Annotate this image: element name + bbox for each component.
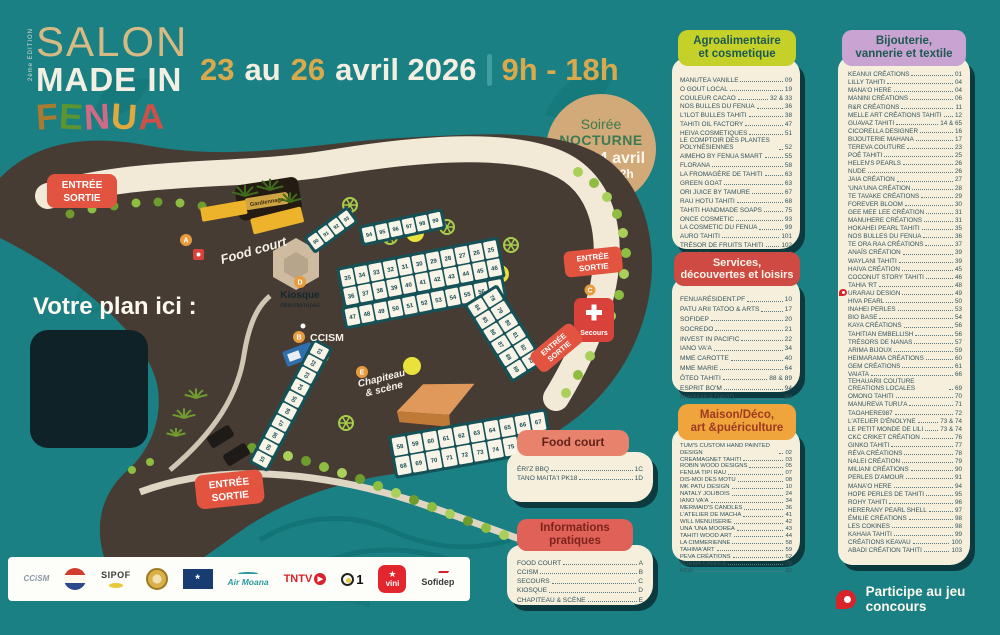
exhibitor-row: MERMAID'S CANDLES36 [680, 505, 792, 512]
exhibitor-name: MK PATU DESIGN [680, 484, 730, 491]
section-header-maison: Maison/Déco, art &puériculture [678, 404, 796, 440]
exhibitor-row: SECOURSC [517, 576, 643, 585]
exhibitor-row: NALEI CRÉATION79 [848, 457, 962, 465]
stand-number: 88 & 89 [769, 375, 792, 382]
stand-number: 75 [785, 207, 792, 214]
stand-number: 100 [951, 539, 962, 546]
food-court-body: ÉRI'Z BBQ1CTANO MAITA'I PK181D [507, 452, 653, 502]
leader-dots [926, 213, 953, 214]
leader-dots [916, 140, 953, 141]
stand-number: 22 [785, 336, 792, 343]
exhibitor-row: IANO VA'A34 [680, 343, 792, 353]
exhibitor-row: ANAÏS CRÉATION39 [848, 248, 962, 256]
stand-number: 12 [955, 112, 962, 119]
bush [585, 351, 595, 361]
stand-number: 53 [955, 306, 962, 313]
exhibitor-name: GEM CRÉATIONS [848, 363, 900, 370]
leader-dots [894, 91, 953, 92]
exhibitor-name: NOS BULLES DU FENUA [848, 233, 921, 240]
stand-number: 78 [955, 450, 962, 457]
edition-label: 2ème ÉDITION [28, 28, 34, 81]
leader-dots [764, 211, 783, 212]
section-header-services: Services, découvertes et loisirs [674, 252, 800, 286]
marker-b: B [296, 335, 301, 342]
exhibitor-name: GEE MEE LEE CRÉATION [848, 209, 924, 216]
leader-dots [871, 375, 953, 376]
stand-number: 20 [785, 316, 792, 323]
stand-number: 70 [955, 393, 962, 400]
bush [409, 495, 419, 505]
exhibitor-row: TRÉSOR DE FRUITS TAHITI102 [680, 240, 792, 249]
leader-dots [879, 318, 953, 319]
date-au: au [244, 52, 280, 88]
leader-dots [723, 379, 767, 380]
leader-dots [904, 327, 953, 328]
exhibitor-name: HOKAHEI PEARL TAHITI [848, 225, 920, 232]
stand-number: 69 [955, 385, 962, 392]
leader-dots [926, 359, 953, 360]
bank-logo: * [183, 569, 213, 589]
stand-number: 25 [955, 152, 962, 159]
leader-dots [903, 164, 953, 165]
exhibitor-row: PERLES D'AMOUR91 [848, 473, 962, 481]
exhibitor-row: HEIMARAMA CRÉATIONS60 [848, 354, 962, 362]
stand-number: 42 [785, 519, 792, 526]
exhibitor-name: POÉ TAHITI [848, 152, 882, 159]
exhibitor-row: ABADI CRÉATION TAHITI103 [848, 546, 962, 554]
bush [355, 474, 365, 484]
la-premiere-logo: 1 [341, 573, 363, 586]
bush [146, 458, 154, 466]
bush [445, 509, 455, 519]
papeete-emblem [146, 568, 168, 590]
stand-number: A [639, 560, 643, 567]
exhibitor-name: GUAVAZ TAHITI [848, 120, 894, 127]
contest-pin-icon [836, 590, 856, 609]
bush [561, 388, 571, 398]
exhibitor-row: MOII92 [680, 567, 792, 574]
secours-label: Secours [580, 330, 608, 337]
exhibitor-row: MME MARIE64 [680, 363, 792, 373]
stand-number: 76 [955, 434, 962, 441]
leader-dots [887, 83, 953, 84]
exhibitor-name: PEVA CRÉATIONS [680, 554, 731, 561]
leader-dots [909, 405, 953, 406]
exhibitor-row: KAYA CRÉATIONS56 [848, 321, 962, 329]
exhibitor-row: ONCE COSMETIC93 [680, 214, 792, 223]
entrance-badge-nw: ENTRÉE SORTIE [47, 174, 117, 208]
exhibitor-name: MERMAID'S CANDLES [680, 505, 742, 512]
stand-number: 57 [955, 339, 962, 346]
exhibitor-name: AIMEHO BY FENUA SMART [680, 153, 763, 160]
stand-number: C [638, 578, 643, 585]
leader-dots [911, 470, 953, 471]
exhibitor-name: MOII [680, 568, 693, 575]
exhibitor-name: CCISM [517, 569, 538, 576]
infos-header: Informations pratiques [517, 519, 633, 551]
stand-number: 95 [955, 491, 962, 498]
booth-number: 95 [379, 229, 386, 236]
exhibitor-name: LA COSMETIC DU FENUA [680, 224, 757, 231]
leader-dots [886, 302, 953, 303]
leader-dots [712, 166, 783, 167]
leader-dots [732, 488, 784, 489]
leader-dots [779, 453, 783, 454]
booth-number: 97 [406, 223, 413, 230]
exhibitor-name: WAYLANI TAHITI [848, 258, 897, 265]
section-body-maison: TUM'S CUSTOM HAND PAINTED DESIGN02CREAMA… [672, 428, 800, 561]
exhibitor-name: MANA'O HERE [848, 87, 892, 94]
stand-number: 99 [785, 224, 792, 231]
exhibitor-row: RÉVA CRÉATIONS78 [848, 449, 962, 457]
stand-number: 94 [785, 385, 792, 392]
leader-dots [894, 535, 953, 536]
stand-number: 39 [955, 258, 962, 265]
leader-dots [728, 564, 783, 565]
bush [66, 210, 75, 219]
stand-number: 51 [785, 130, 792, 137]
stand-number: 36 [955, 233, 962, 240]
exhibitor-name: TAHIMA'ART [680, 547, 715, 554]
exhibitor-row: ORI JUICE BY TAMURE67 [680, 187, 792, 196]
bush [573, 370, 583, 380]
exhibitor-name: TAHITIAN EMBELLISH [848, 331, 913, 338]
stand-number: 27 [955, 176, 962, 183]
leader-dots [891, 446, 953, 447]
section-header-bijouterie: Bijouterie, vannerie et textile [842, 30, 966, 66]
exhibitor-name: CHAPITEAU & SCÈNE [517, 597, 586, 604]
exhibitor-name: TRÉSORS DE NANAS [848, 339, 912, 346]
poster: 2ème ÉDITION SALON MADE IN FENUA 23 au 2… [0, 0, 1000, 635]
leader-dots [889, 503, 953, 504]
exhibitor-name: BIJOUTERIE MAHANA [848, 136, 914, 143]
leader-dots [588, 601, 637, 602]
exhibitor-name: KEANUI CRÉATIONS [848, 71, 909, 78]
exhibitor-name: L'ATELIER DE MACHA [680, 512, 741, 519]
exhibitor-name: TRÉSOR DE FRUITS TAHITI [680, 242, 764, 249]
sipof-logo: SIPOF [101, 571, 131, 588]
exhibitor-name: LA FROMAGÈRE DE TAHITI [680, 171, 763, 178]
leader-dots [732, 543, 783, 544]
exhibitor-name: KAYA CRÉATIONS [848, 322, 902, 329]
exhibitor-row: MANA'O HERE04 [848, 86, 962, 94]
stand-number: 48 [955, 282, 962, 289]
contest-pin-icon [839, 289, 847, 296]
exhibitor-name: ANAÏS CRÉATION [848, 249, 901, 256]
leader-dots [894, 487, 953, 488]
leader-dots [747, 301, 782, 302]
stand-number: 01 [955, 71, 962, 78]
stand-number: 41 [785, 512, 792, 519]
exhibitor-row: NATALY JOLIBOIS24 [680, 491, 792, 498]
stand-number: 34 [785, 498, 792, 505]
marker-d: D [297, 280, 302, 287]
stand-number: 30 [955, 201, 962, 208]
leader-dots [905, 205, 953, 206]
exhibitor-row: R&R CRÉATIONS11 [848, 102, 962, 110]
stand-number: 32 & 33 [770, 95, 792, 102]
stand-number: 34 [785, 345, 792, 352]
exhibitor-name: ÉRI'Z BBQ [517, 466, 549, 473]
stand-number: 24 [785, 491, 792, 498]
exhibitor-name: TEREVA COUTURE [848, 144, 905, 151]
stand-number: 76 [785, 561, 792, 568]
exhibitor-name: TUM'S CUSTOM HAND PAINTED DESIGN [680, 443, 777, 456]
exhibitor-name: GINKO TAHITI [848, 442, 889, 449]
exhibitor-row: O GOUT LOCAL19 [680, 84, 792, 93]
exhibitor-row: CHAPITEAU & SCÈNEE [517, 595, 643, 604]
stand-number: 67 [785, 189, 792, 196]
exhibitor-name: HEIVA COSMETIQUES [680, 130, 747, 137]
leader-dots [895, 414, 953, 415]
exhibitor-row: 'UNA'UNA CRÉATION28 [848, 184, 962, 192]
exhibitor-name: UNA 'UNA MOOREA [680, 526, 735, 533]
stand-number: 72 [955, 410, 962, 417]
stand-number: 14 & 65 [940, 120, 962, 127]
leader-dots [765, 175, 783, 176]
exhibitor-row: AIMEHO BY FENUA SMART55 [680, 152, 792, 161]
leader-dots [749, 116, 783, 117]
stand-number: 26 [955, 168, 962, 175]
stand-number: 10 [785, 484, 792, 491]
leader-dots [911, 75, 953, 76]
stand-number: 54 [955, 314, 962, 321]
stand-number: 19 [785, 86, 792, 93]
section-header-agro: Agroalimentaire et cosmetique [678, 30, 796, 66]
exhibitor-name: RAU HOTU TAHITI [680, 198, 735, 205]
marker-a: A [183, 238, 188, 245]
section-body-agro: MANUTEA VANILLE09O GOUT LOCAL19COULEUR C… [672, 58, 800, 249]
stand-number: 93 [785, 216, 792, 223]
stand-number: 73 & 74 [940, 426, 962, 433]
exhibitor-name: MANINI CRÉATIONS [848, 95, 908, 102]
leader-dots [907, 148, 953, 149]
leader-dots [910, 99, 953, 100]
leader-dots [949, 389, 953, 390]
exhibitor-name: ROHY TAHITI [848, 499, 887, 506]
exhibitor-row: LE PETIT MONDE DE LILI73 & 74 [848, 425, 962, 433]
stand-number: 71 [955, 401, 962, 408]
stand-number: 10 [785, 296, 792, 303]
stand-number: 43 [785, 526, 792, 533]
bush [132, 199, 141, 208]
bush [301, 456, 311, 466]
leader-dots [884, 156, 953, 157]
leader-dots [925, 245, 953, 246]
exhibitor-name: CICORELLA DESIGNER [848, 128, 918, 135]
exhibitor-name: PATU ARII TATOO & ARTS [680, 306, 759, 313]
bush [463, 516, 473, 526]
stand-number: 61 [955, 363, 962, 370]
exhibitor-row: NOS BULLES DU FENUA36 [848, 232, 962, 240]
leader-dots [926, 278, 953, 279]
leader-dots [552, 583, 637, 584]
exhibitor-row: KEANUI CRÉATIONS01 [848, 70, 962, 78]
date-from: 23 [200, 52, 234, 88]
leader-dots [898, 310, 953, 311]
exhibitor-name: KIOSQUE [517, 587, 547, 594]
bush [391, 488, 401, 498]
leader-dots [903, 254, 953, 255]
stand-number: 97 [955, 507, 962, 514]
kiosque-label: Kiosque [280, 290, 320, 301]
stand-number: 07 [785, 470, 792, 477]
exhibitor-row: HELEN'S PEARLS26 [848, 159, 962, 167]
stand-number: 04 [955, 87, 962, 94]
exhibitor-row: HOPE PERLES DE TAHITI95 [848, 490, 962, 498]
exhibitor-row: FLORANA58 [680, 160, 792, 169]
exhibitor-name: MANUTEA VANILLE [680, 77, 738, 84]
contest-banner: Participe au jeu concours [836, 584, 1000, 614]
leader-dots [733, 557, 784, 558]
exhibitor-row: TEREVA COUTURE23 [848, 143, 962, 151]
exhibitor-row: OMONO TAHITI70 [848, 392, 962, 400]
exhibitor-name: ROBIN WOOD DESIGNS [680, 463, 747, 470]
leader-dots [944, 116, 953, 117]
exhibitor-name: MME MARIE [680, 365, 718, 372]
exhibitor-name: TAHITI WOOD ART [680, 533, 732, 540]
exhibitor-row: FOREVER BLOOM30 [848, 200, 962, 208]
exhibitor-row: WILL MENUISERIE42 [680, 519, 792, 526]
exhibitor-row: ARIMA BIJOUX59 [848, 346, 962, 354]
leader-dots [743, 460, 783, 461]
exhibitor-name: SOCREDO [680, 326, 713, 333]
exhibitor-name: ESPRIT BO'M [680, 385, 722, 392]
leader-dots [902, 294, 953, 295]
air-moana-logo: Air Moana [228, 572, 269, 587]
leader-dots [736, 399, 783, 400]
exhibitor-row: LA FROMAGÈRE DE TAHITI63 [680, 169, 792, 178]
stand-number: 47 [785, 121, 792, 128]
stand-number: 59 [955, 347, 962, 354]
stand-number: 28 [955, 185, 962, 192]
exhibitor-row: JAIA CRÉATION27 [848, 175, 962, 183]
leader-dots [879, 286, 953, 287]
exhibitor-name: POEMA CANDLE [680, 561, 726, 568]
stand-number: 04 [955, 79, 962, 86]
exhibitor-name: BIO BASE [848, 314, 877, 321]
leader-dots [909, 519, 953, 520]
stand-number: 17 [955, 136, 962, 143]
leader-dots [549, 592, 636, 593]
exhibitor-row: HIVA PEARL50 [848, 297, 962, 305]
stand-number: 11 [955, 104, 962, 111]
exhibitor-row: HOKAHEI PEARL TAHITI35 [848, 224, 962, 232]
exhibitor-name: INVEST IN PACIFIC [680, 336, 739, 343]
exhibitor-name: FOREVER BLOOM [848, 201, 903, 208]
exhibitor-name: 'UNA'UNA CRÉATION [848, 185, 910, 192]
sofidep-logo: Sofidep [421, 571, 454, 587]
leader-dots [734, 536, 784, 537]
leader-dots [765, 157, 783, 158]
tntv-logo: TNTV▶ [284, 573, 327, 585]
exhibitor-name: ONCE COSMETIC [680, 216, 734, 223]
exhibitor-row: KAHAIA TAHITI99 [848, 530, 962, 538]
leader-dots [924, 221, 953, 222]
exhibitor-row: INVEST IN PACIFIC22 [680, 333, 792, 343]
stand-number: 63 [785, 171, 792, 178]
leader-dots [740, 81, 782, 82]
exhibitor-name: TAHITI HANDMADE SOAPS [680, 207, 762, 214]
exhibitor-name: IANO VA'A [680, 498, 709, 505]
sponsors-bar: CCiSM SIPOF * Air Moana TNTV▶ 1 ★vini So… [8, 557, 470, 601]
exhibitor-row: ÉMILIE CRÉATIONS98 [848, 514, 962, 522]
exhibitor-row: COULEUR CACAO32 & 33 [680, 93, 792, 102]
leader-dots [779, 149, 783, 150]
exhibitor-row: TUM'S CUSTOM HAND PAINTED DESIGN02 [680, 443, 792, 456]
bush [403, 357, 421, 375]
exhibitor-row: SOCREDO21 [680, 323, 792, 333]
leader-dots [734, 523, 784, 524]
stand-number: 49 [955, 290, 962, 297]
exhibitor-row: UNA 'UNA MOOREA43 [680, 526, 792, 533]
exhibitor-name: LA CIMMERIENNE [680, 540, 730, 547]
exhibitor-row: IANO VA'A34 [680, 498, 792, 505]
exhibitor-row: CRÉATIONS KEAVAU100 [848, 538, 962, 546]
stand-number: 102 [781, 242, 792, 249]
stand-number: 06 [955, 95, 962, 102]
stand-number: 05 [785, 463, 792, 470]
exhibitor-row: RAU HOTU TAHITI68 [680, 196, 792, 205]
stand-number: 21 [785, 326, 792, 333]
marker-c: C [587, 288, 592, 295]
leader-dots [714, 350, 783, 351]
exhibitor-name: OMONO TAHITI [848, 393, 894, 400]
leader-dots [906, 478, 953, 479]
section-body-services: FENUARÉSIDENT.PF10PATU ARII TATOO & ARTS… [672, 278, 800, 392]
event-logo: 2ème ÉDITION SALON MADE IN FENUA [36, 22, 186, 136]
leader-dots [901, 108, 953, 109]
exhibitor-row: COCONUT STORY TAHITI46 [848, 273, 962, 281]
exhibitor-row: INAHEI PERLES53 [848, 305, 962, 313]
exhibitor-row: LA COSMETIC DU FENUA99 [680, 223, 792, 232]
leader-dots [738, 99, 768, 100]
exhibitor-name: SOFIDEP [680, 316, 709, 323]
stand-number: 1D [635, 475, 643, 482]
leader-dots [736, 220, 783, 221]
svg-text:SORTIE: SORTIE [63, 193, 101, 204]
stand-number: 55 [785, 153, 792, 160]
exhibitor-name: JAIA CRÉATION [848, 176, 895, 183]
exhibitor-row: BIJOUTERIE MAHANA17 [848, 135, 962, 143]
exhibitor-row: TAHITI OIL FACTORY47 [680, 119, 792, 128]
exhibitor-row: POÉ TAHITI25 [848, 151, 962, 159]
leader-dots [913, 543, 950, 544]
leader-dots [745, 125, 783, 126]
leader-dots [902, 270, 953, 271]
exhibitor-name: CRÉATIONS KEAVAU [848, 539, 911, 546]
bush [621, 248, 631, 258]
leader-dots [896, 397, 953, 398]
exhibitor-name: AURO TAHITI [680, 233, 720, 240]
leader-dots [761, 311, 782, 312]
stand-number: 36 [785, 103, 792, 110]
leader-dots [922, 438, 953, 439]
leader-dots [715, 330, 782, 331]
exhibitor-row: TE ORA RAA CRÉATIONS37 [848, 240, 962, 248]
stand-number: 62 [785, 554, 792, 561]
exhibitor-name: MILIANI CRÉATIONS [848, 466, 909, 473]
exhibitor-name: FENUARÉSIDENT.PF [680, 296, 745, 303]
exhibitor-name: TAOAHERE987 [848, 410, 893, 417]
bush [499, 530, 509, 540]
leader-dots [918, 422, 939, 423]
entrance-badge-sw: ENTRÉE SORTIE [194, 469, 265, 510]
exhibitor-row: MILIANI CRÉATIONS90 [848, 465, 962, 473]
food-court-header: Food court [517, 430, 629, 456]
exhibitor-row: LES COKINES98 [848, 522, 962, 530]
stand-number: 40 [785, 355, 792, 362]
